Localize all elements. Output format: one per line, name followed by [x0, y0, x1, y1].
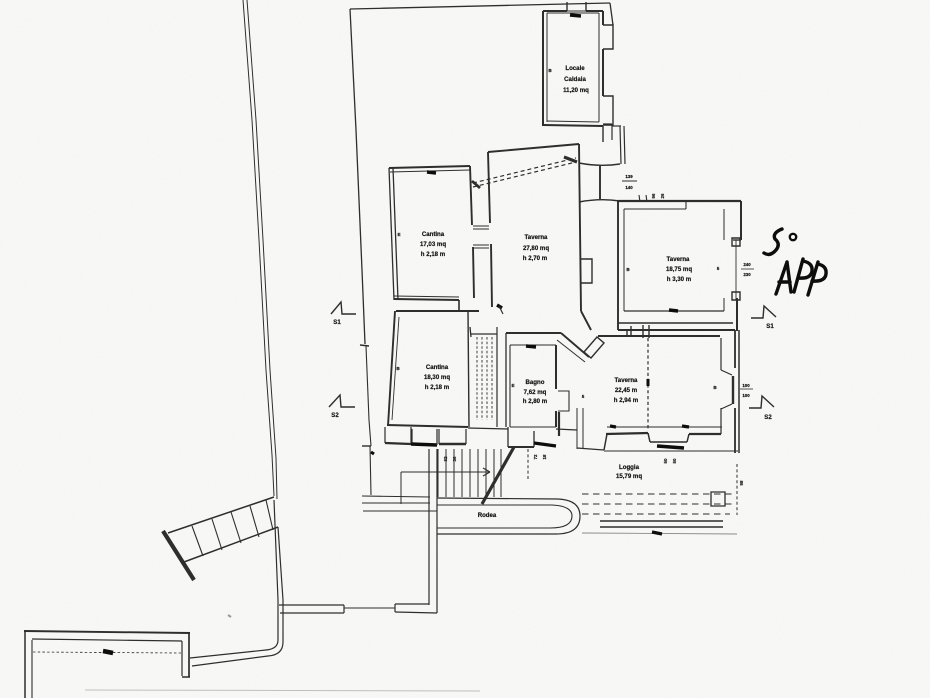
svg-text:7,62 mq: 7,62 mq — [524, 389, 547, 396]
svg-text:96: 96 — [651, 193, 656, 198]
svg-text:15,79 mq: 15,79 mq — [616, 473, 642, 480]
svg-text:E: E — [511, 383, 514, 388]
svg-text:50: 50 — [672, 458, 677, 463]
svg-text:139: 139 — [625, 174, 633, 179]
svg-text:22,45 m: 22,45 m — [615, 387, 638, 394]
svg-text:Bagno: Bagno — [526, 379, 545, 386]
svg-text:Cantina: Cantina — [426, 364, 449, 371]
svg-text:S2: S2 — [331, 412, 339, 419]
svg-text:Taverna: Taverna — [615, 377, 639, 384]
svg-text:11,20 mq: 11,20 mq — [563, 87, 589, 94]
svg-text:h 2,18 m: h 2,18 m — [425, 384, 450, 391]
svg-text:100: 100 — [742, 383, 750, 388]
svg-text:E: E — [397, 232, 400, 237]
svg-text:26: 26 — [660, 193, 665, 198]
svg-text:27,80 mq: 27,80 mq — [523, 245, 549, 252]
svg-text:50: 50 — [663, 458, 668, 463]
svg-text:72: 72 — [533, 454, 538, 459]
svg-text:Cantina: Cantina — [422, 231, 445, 238]
svg-text:17,03 mq: 17,03 mq — [420, 241, 446, 248]
svg-text:5: 5 — [582, 394, 585, 399]
svg-text:S1: S1 — [766, 323, 774, 330]
svg-text:140: 140 — [625, 185, 633, 190]
svg-text:S2: S2 — [764, 414, 772, 421]
svg-text:230: 230 — [743, 272, 751, 277]
svg-text:h 2,80 m: h 2,80 m — [523, 398, 548, 405]
svg-text:Caldaia: Caldaia — [564, 76, 586, 83]
svg-text:Rodea: Rodea — [478, 512, 497, 519]
svg-text:98: 98 — [739, 480, 744, 485]
svg-text:Taverna: Taverna — [525, 234, 549, 241]
svg-text:h 2,70 m: h 2,70 m — [523, 255, 548, 262]
svg-text:18,30 mq: 18,30 mq — [424, 374, 450, 381]
svg-text:h 2,94 m: h 2,94 m — [614, 397, 639, 404]
svg-text:h 2,18 m: h 2,18 m — [421, 251, 446, 258]
svg-text:Locale: Locale — [565, 65, 585, 72]
svg-text:18: 18 — [542, 454, 547, 459]
svg-text:240: 240 — [743, 262, 751, 267]
svg-text:5: 5 — [717, 266, 720, 271]
svg-text:18,75 mq: 18,75 mq — [666, 266, 692, 273]
svg-text:Loggia: Loggia — [619, 464, 640, 471]
svg-text:h 3,30 m: h 3,30 m — [667, 276, 692, 283]
svg-text:100: 100 — [742, 393, 750, 398]
svg-text:Taverna: Taverna — [667, 256, 691, 263]
svg-text:S1: S1 — [333, 319, 341, 326]
